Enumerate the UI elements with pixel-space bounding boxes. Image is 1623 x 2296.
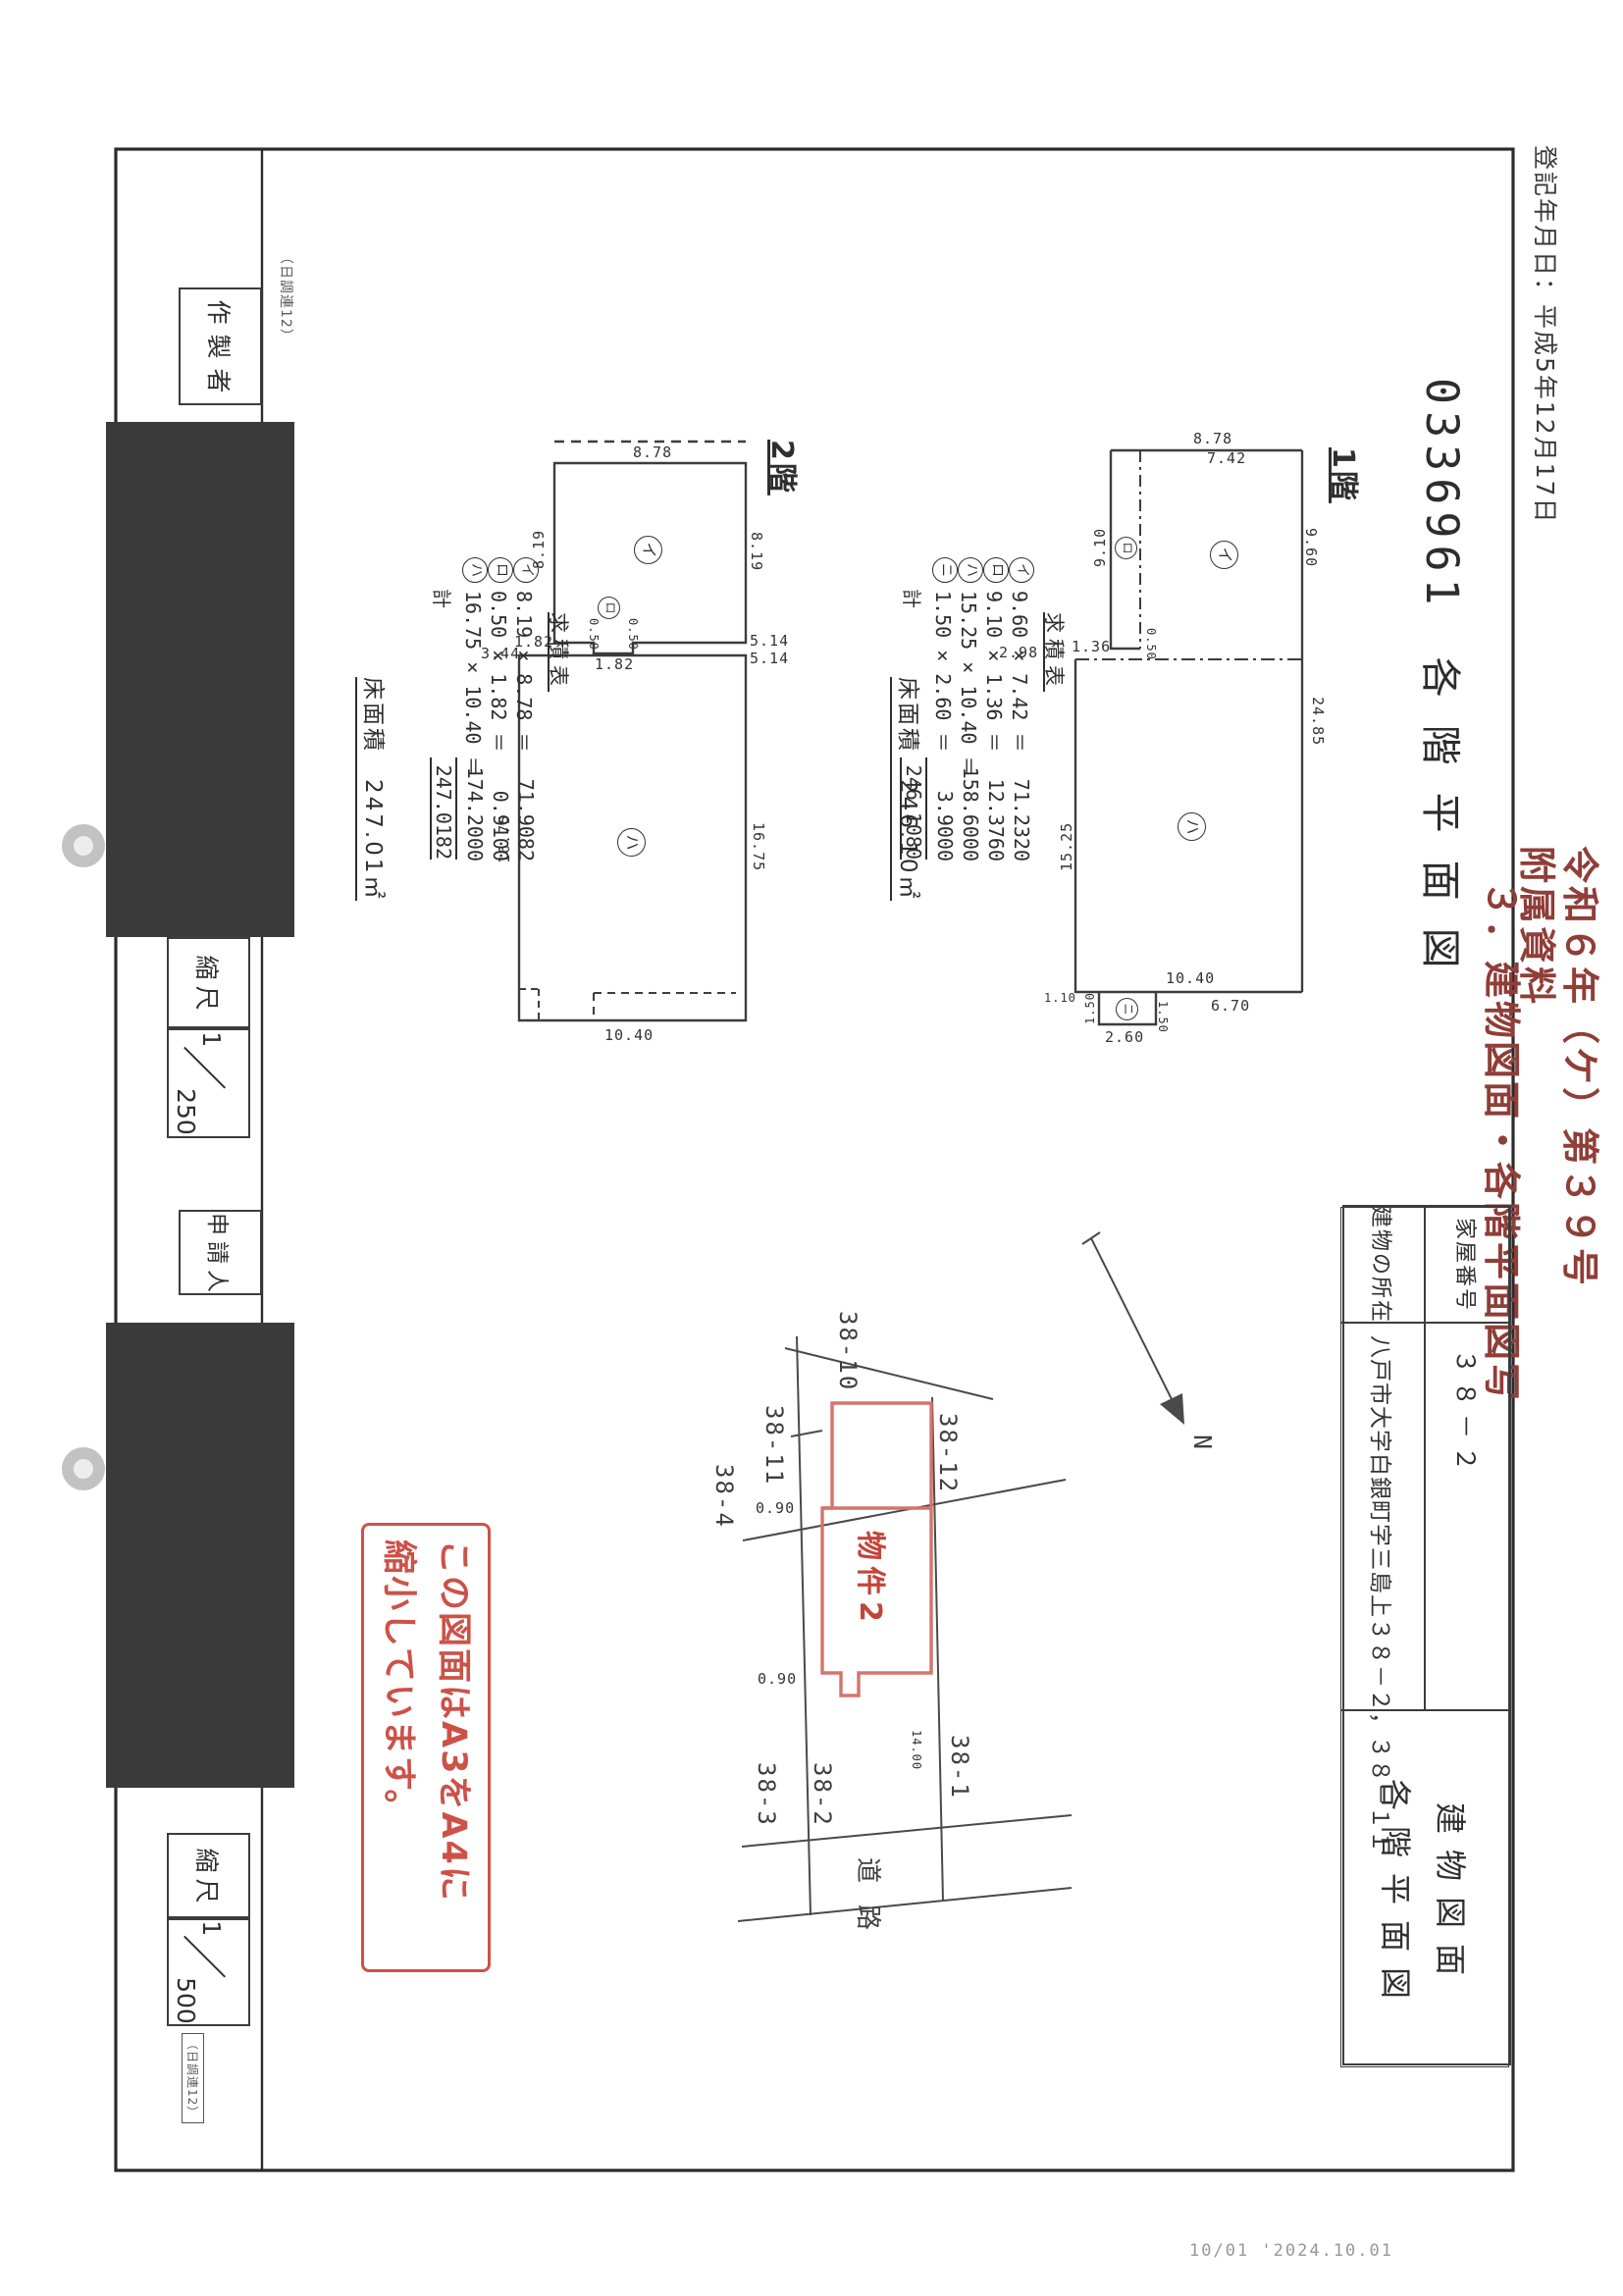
- floor2-area-table-title: 求積表: [545, 612, 574, 861]
- scale-fraction-250: 1／250: [177, 1029, 241, 1137]
- floor2-dim-jut-depth-l: 0.50: [587, 618, 601, 651]
- case-number-stamp: 令和６年（ケ）第３９号 附属資料: [1515, 846, 1601, 1288]
- scale-value-box-2: 1／500: [167, 1918, 250, 2026]
- floor2-mark-ro: ロ: [598, 597, 620, 619]
- applicant-box: 申請人: [179, 1210, 262, 1295]
- road-label: 道路: [852, 1857, 888, 1952]
- floor1-area-table-title: 求積表: [1040, 612, 1070, 861]
- scale-fraction-500: 1／500: [177, 1918, 241, 2026]
- floor2-dim-top: 8.78: [633, 444, 672, 461]
- floor2-dim-seam-lower: 5.14: [750, 650, 789, 667]
- floor1-dim-wing-bottom: 1.36: [1072, 638, 1111, 655]
- redaction-box-applicant: [106, 1323, 294, 1788]
- scale-value-box-1: 1／250: [167, 1028, 250, 1138]
- floor2-dim-bottom: 10.40: [604, 1026, 654, 1044]
- floor1-dim-top-inner: 7.42: [1207, 449, 1246, 467]
- table-row: イ9.60 × 7.42 ＝71.2320: [1009, 557, 1034, 861]
- scale-label-1: 縮尺: [191, 949, 227, 1016]
- scale-label-box-1: 縮尺: [167, 937, 250, 1028]
- parcel-38-12: 38-12: [934, 1413, 962, 1493]
- floor1-dim-porch-offset: 1.10: [1044, 991, 1076, 1005]
- floor2-area-table: 求積表 イ8.19 × 8.78 ＝71.9082 ロ0.50 × 1.82 ＝…: [431, 557, 574, 861]
- parcel-38-1: 38-1: [946, 1735, 973, 1800]
- registration-date: 登記年月日：平成5年12月17日: [1529, 145, 1564, 525]
- north-label: N: [1188, 1435, 1217, 1449]
- table-row: ロ9.10 × 1.36 ＝12.3760: [983, 557, 1009, 861]
- floor1-dim-bottom: 10.40: [1166, 969, 1215, 987]
- form-title-line1: 建物図面: [1430, 1787, 1475, 1991]
- floor1-dim-right-total: 24.85: [1309, 697, 1327, 746]
- table-row: ハ15.25 × 10.40 ＝158.6000: [958, 557, 983, 861]
- scale-label-2: 縮尺: [191, 1842, 227, 1908]
- floor1-mark-ro: ロ: [1115, 537, 1137, 559]
- floor1-dim-porch-depth-r: 1.50: [1156, 1001, 1170, 1033]
- parcel-38-10: 38-10: [834, 1311, 862, 1391]
- document-title: 各階平面図: [1415, 657, 1474, 996]
- floor2-dim-jut-depth-r: 0.50: [626, 618, 640, 651]
- floor2-dim-seam-upper: 5.14: [750, 632, 789, 650]
- document-number-block: 0336961 各階平面図: [1415, 378, 1474, 996]
- floor1-plan-outline: [1075, 450, 1302, 1024]
- floor1-dim-left: 9.10: [1091, 528, 1109, 567]
- reduction-stamp-line2: 縮小しています。: [371, 1539, 426, 1956]
- floor1-dim-porch-width: 2.60: [1105, 1028, 1144, 1046]
- house-number-value: ３８－２: [1425, 1323, 1509, 1710]
- floor2-mark-i: イ: [634, 536, 662, 564]
- floor1-mark-ni: ニ: [1116, 998, 1138, 1020]
- redaction-box-maker: [106, 422, 294, 937]
- scale-label-box-2: 縮尺: [167, 1833, 250, 1918]
- floor1-dim-porch-depth-l: 1.50: [1083, 992, 1097, 1024]
- title-block-table: 家屋番号 ３８－２ 建物図面 各階平面図 建物の所在 八戸市大字白銀町字三島上３…: [1342, 1205, 1511, 2065]
- table-row: ハ16.75 × 10.40 ＝174.2000: [462, 557, 488, 861]
- maker-label: 作製者: [203, 289, 238, 402]
- reduction-stamp-line1: この図面はA3をA4に: [426, 1539, 481, 1956]
- table-row: イ8.19 × 8.78 ＝71.9082: [513, 557, 539, 861]
- scanned-document-sheet: 登記年月日：平成5年12月17日 0336961 各階平面図 令和６年（ケ）第３…: [0, 0, 1623, 2296]
- floor1-mark-i: イ: [1210, 541, 1238, 569]
- site-plan-boundaries: [738, 1336, 1072, 1921]
- floor2-dim-lower-right: 16.75: [750, 822, 767, 871]
- floor1-dim-bottom-right: 6.70: [1211, 997, 1250, 1015]
- north-arrow: [1082, 1232, 1184, 1425]
- punch-holes: [62, 824, 105, 1490]
- table-total-row: 計247.0182: [431, 557, 456, 861]
- scan-date-stamp: 10/01 '2024.10.01: [1189, 2241, 1393, 2261]
- floor2-dim-right: 8.19: [748, 532, 765, 571]
- location-label: 建物の所在: [1340, 1207, 1425, 1323]
- floor2-label: 2階: [763, 440, 807, 496]
- table-row: ニ1.50 × 2.60 ＝3.9000: [932, 557, 958, 861]
- site-dim-lower: 0.90: [758, 1670, 797, 1688]
- document-number: 0336961: [1416, 378, 1468, 612]
- floor1-label: 1階: [1325, 447, 1368, 503]
- site-dim-upper: 0.90: [756, 1499, 795, 1517]
- form-mark-bottom: （日調連12）: [182, 2033, 204, 2123]
- parcel-38-4: 38-4: [710, 1464, 738, 1529]
- floor2-floor-area: 床面積 247.01㎡: [355, 677, 393, 901]
- sheet-border: [116, 149, 1513, 2170]
- floor1-dim-top: 8.78: [1193, 430, 1232, 447]
- floor2-mark-ha: ハ: [617, 828, 646, 857]
- floor1-mark-ha: ハ: [1178, 812, 1206, 841]
- site-dim-frontage: 14.00: [910, 1730, 923, 1770]
- floor1-floor-area: 床面積 246.10㎡: [890, 677, 927, 901]
- case-number-line1: 令和６年（ケ）第３９号: [1558, 846, 1601, 1288]
- subject-building-label: 物件2: [852, 1531, 895, 1628]
- parcel-38-11: 38-11: [760, 1405, 788, 1486]
- parcel-38-2: 38-2: [809, 1762, 836, 1827]
- parcel-38-3: 38-3: [753, 1762, 780, 1827]
- floor1-dim-right: 9.60: [1302, 528, 1320, 567]
- applicant-label: 申請人: [204, 1207, 237, 1298]
- form-mark-top: （日調連12）: [277, 250, 296, 343]
- location-value: 八戸市大字白銀町字三島上３８－２，３８－１１: [1340, 1323, 1425, 1710]
- house-number-label: 家屋番号: [1425, 1207, 1509, 1323]
- reduction-stamp: この図面はA3をA4に 縮小しています。: [361, 1523, 491, 1972]
- maker-box: 作製者: [179, 287, 262, 405]
- floor1-dim-wing-gap: 0.50: [1144, 628, 1158, 660]
- table-row: ロ0.50 × 1.82 ＝0.9100: [488, 557, 513, 861]
- floor2-dim-jut-width: 1.82: [595, 655, 634, 673]
